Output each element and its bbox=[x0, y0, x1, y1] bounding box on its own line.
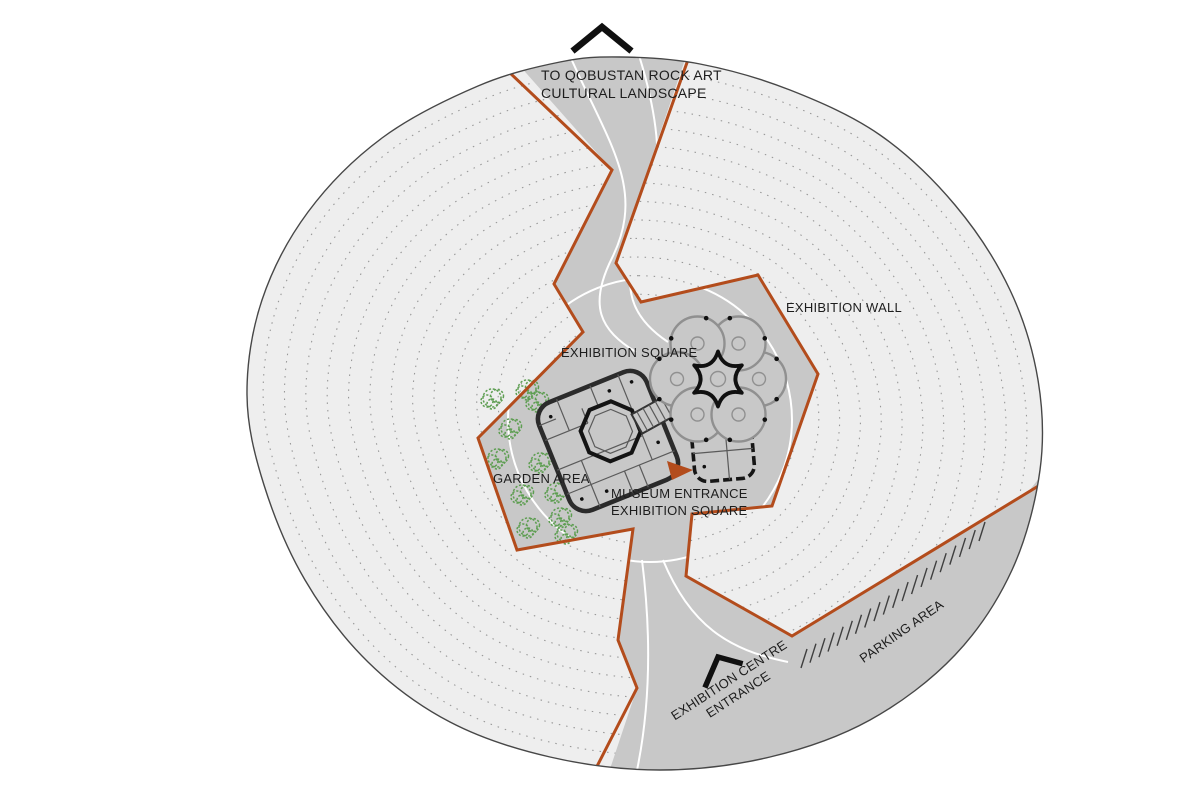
label-to-qobustan: TO QOBUSTAN ROCK ART CULTURAL LANDSCAPE bbox=[541, 66, 722, 102]
site-plan-drawing bbox=[0, 0, 1200, 800]
label-garden-area: GARDEN AREA bbox=[493, 471, 590, 488]
label-to-qobustan-line1: TO QOBUSTAN ROCK ART bbox=[541, 66, 722, 84]
site-plan: TO QOBUSTAN ROCK ART CULTURAL LANDSCAPE … bbox=[0, 0, 1200, 800]
label-museum-entrance: MUSEUM ENTRANCE EXHIBITION SQUARE bbox=[611, 486, 731, 520]
label-exhibition-square: EXHIBITION SQUARE bbox=[561, 345, 697, 362]
label-museum-entrance-line1: MUSEUM ENTRANCE bbox=[611, 486, 731, 503]
label-exhibition-wall: EXHIBITION WALL bbox=[786, 300, 902, 317]
label-museum-entrance-line2: EXHIBITION SQUARE bbox=[611, 503, 731, 520]
label-to-qobustan-line2: CULTURAL LANDSCAPE bbox=[541, 84, 722, 102]
